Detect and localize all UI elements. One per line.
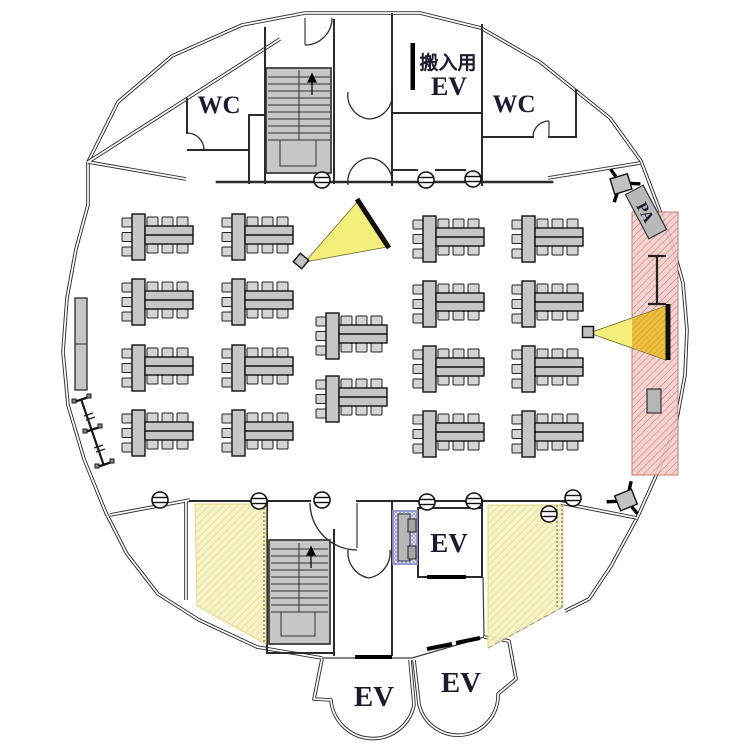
banquet-table (512, 216, 583, 262)
coat-rack (72, 394, 114, 468)
label-wc-left: WC (197, 92, 240, 119)
label-ev-core: EV (430, 528, 468, 558)
projector-beam-left (305, 201, 387, 262)
banquet-table (316, 376, 387, 422)
label-ev-lobby-left: EV (354, 681, 394, 713)
door-closer-icon (152, 492, 168, 508)
banquet-table (413, 281, 484, 327)
banquet-table (122, 345, 193, 391)
door-closer-icon (466, 493, 482, 509)
door-closer-icon (565, 490, 581, 506)
door-closer-icon (251, 493, 267, 509)
door-closer-icon (314, 172, 330, 188)
floor-plan-page: WC WC 搬入用 EV EV EV EV PA (0, 0, 750, 750)
door-closer-icon (541, 506, 557, 522)
pa-cabinet (647, 389, 661, 413)
floor-plan-svg: WC WC 搬入用 EV EV EV EV PA (0, 0, 750, 750)
label-wc-right: WC (492, 91, 535, 118)
door-closer-icon (419, 494, 435, 510)
door-closer-icon (418, 172, 434, 188)
elevator-lobby (314, 637, 516, 739)
door-closer-icon (314, 492, 330, 508)
storage-zone-yellow-right (488, 505, 563, 648)
banquet-table (222, 279, 293, 325)
label-ev-lobby-right: EV (441, 667, 481, 699)
banquet-table (413, 346, 484, 392)
banquet-table (222, 410, 293, 456)
label-service-ev-1: 搬入用 (419, 51, 476, 74)
door-closer-icon (465, 171, 481, 187)
banquet-table (222, 214, 293, 260)
banquet-table (413, 411, 484, 457)
projector-icon (293, 253, 308, 268)
stairs-bottom (269, 540, 330, 644)
banquet-table (122, 279, 193, 325)
banquet-table (122, 214, 193, 260)
banquet-table (222, 345, 293, 391)
banquet-table (316, 313, 387, 359)
projector-icon (583, 327, 594, 338)
stairs-top (266, 68, 331, 173)
banquet-table (512, 281, 583, 327)
banquet-table (413, 216, 484, 262)
banquet-table (512, 346, 583, 392)
banquet-table (122, 410, 193, 456)
banquet-table (512, 411, 583, 457)
label-service-ev-2: EV (431, 72, 467, 101)
